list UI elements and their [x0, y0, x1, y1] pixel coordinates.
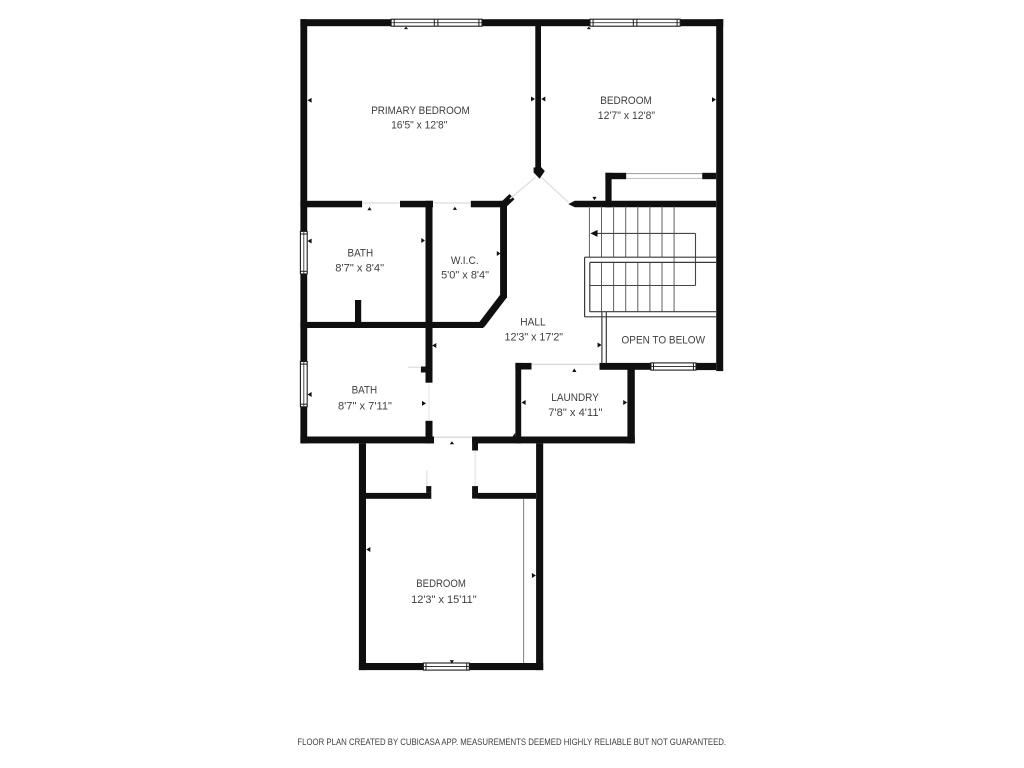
svg-text:12'3" x 15'11": 12'3" x 15'11": [411, 594, 477, 606]
svg-text:8'7" x 8'4": 8'7" x 8'4": [335, 263, 384, 275]
svg-text:OPEN TO BELOW: OPEN TO BELOW: [622, 335, 706, 347]
svg-text:LAUNDRY: LAUNDRY: [551, 392, 599, 404]
svg-text:BATH: BATH: [352, 385, 378, 397]
svg-text:7'8" x 4'11": 7'8" x 4'11": [548, 407, 602, 419]
svg-text:8'7" x 7'11": 8'7" x 7'11": [338, 401, 392, 413]
svg-text:W.I.C.: W.I.C.: [451, 255, 479, 267]
svg-text:PRIMARY BEDROOM: PRIMARY BEDROOM: [371, 105, 470, 117]
svg-text:BEDROOM: BEDROOM: [416, 578, 466, 590]
svg-text:16'5" x 12'8": 16'5" x 12'8": [391, 120, 447, 132]
svg-text:12'7" x 12'8": 12'7" x 12'8": [598, 110, 655, 122]
svg-text:5'0" x 8'4": 5'0" x 8'4": [441, 270, 489, 282]
svg-text:HALL: HALL: [520, 316, 545, 328]
svg-text:BATH: BATH: [348, 248, 374, 260]
svg-text:BEDROOM: BEDROOM: [600, 95, 652, 107]
svg-text:FLOOR PLAN CREATED BY CUBICASA: FLOOR PLAN CREATED BY CUBICASA APP. MEAS…: [297, 737, 726, 747]
svg-text:12'3" x 17'2": 12'3" x 17'2": [505, 331, 564, 343]
